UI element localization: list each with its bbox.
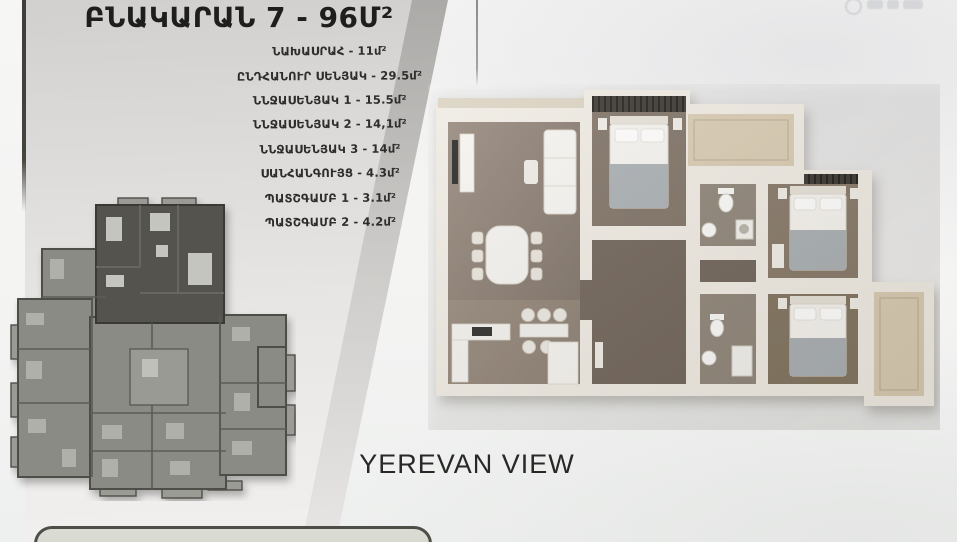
cooktop — [472, 327, 492, 336]
room-label: ՆՆՋԱՍԵՆՅԱԿ 1 — [253, 93, 352, 108]
balcony1-floor — [688, 114, 794, 166]
room-area: 29.5մ² — [380, 68, 422, 82]
apartment-plan-3d — [428, 84, 940, 430]
separator: - — [353, 190, 358, 204]
sink — [702, 223, 716, 237]
room-label: ՆՆՋԱՍԵՆՅԱԿ 3 — [259, 142, 358, 157]
coffee-table — [524, 160, 538, 184]
room-list-item: ՆՆՋԱՍԵՆՅԱԿ 1 - 15.5մ² — [212, 87, 448, 113]
room-area: 11մ² — [357, 44, 386, 58]
room-area: 4.3մ² — [366, 166, 400, 180]
room-area: 3.1մ² — [362, 190, 396, 204]
sink — [702, 351, 716, 365]
room-label: ԸՆԴՀԱՆՈՒՐ ՍԵՆՅԱԿ — [237, 68, 367, 83]
sofa — [544, 130, 576, 214]
separator: - — [353, 215, 358, 229]
blanket — [790, 338, 846, 376]
elevator — [142, 359, 158, 377]
apartment-title: ԲՆԱԿԱՐԱՆ 7 - 96Մ² — [30, 1, 448, 34]
room-list-item: ՆԱԽԱՍՐԱՀ - 11մ² — [211, 38, 447, 64]
room-area: 14,1մ² — [365, 117, 407, 131]
wardrobe — [592, 96, 686, 112]
watermark-circle-icon — [845, 0, 862, 15]
room-area: 4.2մ² — [362, 214, 396, 228]
blanket — [790, 230, 846, 270]
tv-console — [460, 134, 474, 192]
stair-core — [130, 349, 188, 405]
separator: - — [356, 117, 361, 131]
bottom-frame — [34, 526, 432, 542]
dining-table — [486, 226, 528, 284]
room-label: ՆՆՋԱՍԵՆՅԱԿ 2 — [253, 117, 352, 132]
separator: - — [356, 93, 361, 107]
toilet — [711, 320, 724, 337]
room-area: 14մ² — [371, 141, 400, 155]
corridor-floor — [592, 240, 686, 384]
background-fold-line — [476, 0, 478, 86]
toilet — [719, 194, 733, 212]
building-plan-thumbnail — [10, 197, 296, 501]
separator: - — [348, 44, 353, 58]
console — [595, 342, 603, 368]
highlighted-unit — [96, 205, 224, 323]
parapet — [438, 98, 584, 108]
info-sheet-border — [22, 0, 26, 212]
wardrobe — [804, 174, 858, 184]
page: ԲՆԱԿԱՐԱՆ 7 - 96Մ² ՆԱԽԱՍՐԱՀ - 11մ² ԸՆԴՀԱՆ… — [0, 0, 957, 542]
tv — [452, 140, 458, 184]
door-opening — [580, 280, 592, 320]
separator: - — [371, 68, 376, 82]
room-label: ՍԱՆՀԱՆԳՈՒՅՑ — [261, 166, 354, 181]
hall-opening — [700, 260, 756, 282]
caption-yerevan-view: YEREVAN VIEW — [322, 449, 612, 480]
room-list-item: ՆՆՋԱՍԵՆՅԱԿ 3 - 14մ² — [212, 136, 448, 162]
room-list-item: ՆՆՋԱՍԵՆՅԱԿ 2 - 14,1մ² — [212, 111, 448, 137]
room-list-item: ԸՆԴՀԱՆՈՒՐ ՍԵՆՅԱԿ - 29.5մ² — [211, 63, 447, 89]
desk — [772, 244, 784, 268]
room-label: ՆԱԽԱՍՐԱՀ — [272, 44, 345, 59]
separator: - — [357, 166, 362, 180]
bar-counter — [520, 324, 568, 337]
cabinet — [548, 342, 578, 384]
blanket — [610, 164, 668, 208]
balcony2-floor — [874, 292, 924, 396]
room-area: 15.5մ² — [365, 92, 407, 106]
vanity — [732, 346, 752, 376]
watermark — [845, 0, 949, 14]
separator: - — [362, 141, 367, 155]
room-list-item: ՍԱՆՀԱՆԳՈՒՅՑ - 4.3մ² — [212, 160, 448, 186]
